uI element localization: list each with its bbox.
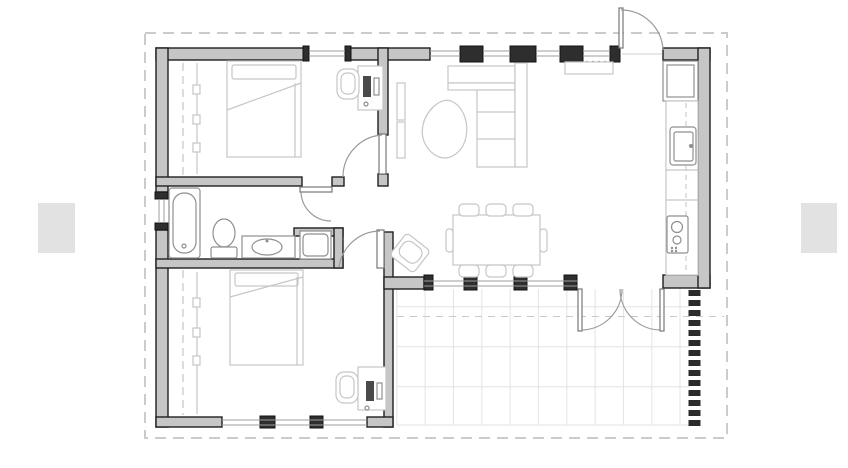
kitchen-sink — [670, 127, 696, 165]
vanity-sink — [242, 236, 295, 258]
living-south-window-band — [424, 281, 578, 286]
wardrobe-handle — [193, 298, 200, 307]
cap-bath-window-top — [155, 192, 168, 199]
bathroom — [169, 188, 331, 259]
bedroom-1 — [183, 61, 383, 175]
wardrobe-handle — [193, 85, 200, 94]
sofa-seats — [477, 90, 515, 167]
stove-knob — [675, 247, 677, 249]
patio — [397, 289, 724, 426]
wall-bottom-left — [156, 417, 222, 427]
toilet — [211, 219, 237, 258]
bedroom1-door-swing — [343, 135, 382, 177]
carousel-next-placeholder[interactable] — [801, 203, 837, 253]
bathroom-left-window — [159, 199, 164, 223]
kitchen — [663, 61, 698, 275]
desk-chair-2 — [336, 372, 358, 403]
desk-chair-1 — [337, 69, 359, 99]
sink-faucet — [266, 240, 269, 243]
sofa-chaise — [448, 66, 515, 83]
armchair-outline — [390, 233, 431, 274]
bedroom1-top-window — [309, 51, 345, 56]
bed-1 — [227, 61, 301, 157]
tv-unit-upper — [397, 83, 405, 120]
post-south-band-0 — [424, 275, 433, 290]
bedroom-2-door — [339, 230, 384, 268]
french-door-leaf-right — [660, 289, 664, 331]
bathroom-door-swing — [301, 192, 331, 221]
sofa-backrest — [515, 63, 527, 167]
dining-chair — [486, 204, 506, 216]
wall-bottom-right — [367, 417, 393, 427]
post-south-band-3 — [564, 275, 577, 290]
wall-right — [698, 48, 710, 288]
stove-knob — [671, 250, 673, 252]
screenshot-stage — [0, 0, 848, 468]
wardrobe-handle — [193, 143, 200, 152]
entry-bench — [565, 62, 613, 74]
tv-unit-lower — [397, 122, 405, 158]
toilet-tank — [211, 247, 237, 258]
toilet-bowl — [213, 219, 235, 247]
stove-knob — [671, 247, 673, 249]
entry-door-leaf — [619, 8, 623, 48]
french-door-leaf-left — [578, 289, 582, 331]
wall-bedroom1-east-stub — [378, 174, 388, 186]
dining-set — [446, 204, 547, 277]
wall-top-bedroom1 — [156, 48, 308, 60]
post-bedroom2-window-1 — [260, 416, 275, 428]
coffee-table — [422, 100, 466, 158]
floor-plan-canvas — [0, 0, 848, 468]
wall-left-upper — [156, 48, 168, 192]
bathtub — [169, 188, 200, 258]
dining-table — [453, 215, 540, 265]
wall-bedroom1-bathroom — [156, 177, 302, 186]
computer-monitor — [363, 76, 371, 97]
bed-2 — [230, 270, 303, 365]
post-bedroom2-window-2 — [310, 416, 323, 428]
bedroom-2 — [183, 270, 386, 415]
desk-2 — [358, 367, 386, 410]
wardrobe-handle — [193, 356, 200, 365]
living-dining — [390, 62, 613, 277]
patio-french-door — [578, 289, 664, 331]
cap-bedroom1-window-left — [303, 46, 309, 61]
dining-chair — [513, 204, 533, 216]
pier-top-3 — [560, 46, 583, 62]
french-door-swing-left — [582, 289, 622, 330]
pier-top-2 — [510, 46, 536, 62]
dining-chair-end — [540, 229, 547, 252]
sink-faucet — [689, 144, 693, 148]
armchair — [390, 233, 431, 274]
patio-tile-grid — [397, 289, 690, 425]
pier-top-1 — [460, 46, 483, 62]
bedroom2-door-leaf — [377, 230, 384, 268]
washing-machine — [300, 231, 331, 259]
bedroom2-bottom-window — [222, 420, 367, 425]
wall-bathroom-bedroom2 — [156, 259, 343, 268]
cap-bath-window-bottom — [155, 223, 168, 230]
dining-chair — [459, 265, 479, 277]
dining-chair — [486, 265, 506, 277]
bed-outline — [230, 270, 303, 365]
fridge — [663, 61, 698, 101]
carousel-prev-placeholder[interactable] — [38, 203, 75, 253]
stove-knob — [675, 250, 677, 252]
desk-1 — [358, 66, 383, 110]
sofa-edge — [448, 83, 515, 90]
entry-door — [619, 8, 663, 50]
dining-chair — [459, 204, 479, 216]
computer-monitor — [366, 381, 374, 401]
bedroom1-door-leaf — [379, 134, 386, 174]
stove — [667, 216, 688, 253]
wardrobe-handle — [193, 115, 200, 124]
dining-chair-end — [446, 229, 453, 252]
french-door-swing-right — [620, 289, 660, 330]
wall-hall-stub — [332, 177, 344, 186]
dining-chair — [513, 265, 533, 277]
bedroom2-door-swing — [339, 231, 380, 267]
cap-bedroom1-window-right — [345, 46, 351, 61]
entry-door-swing — [621, 10, 663, 50]
bathroom-door-leaf — [300, 187, 332, 192]
wardrobe-handle — [193, 328, 200, 337]
wall-living-south-solid — [384, 277, 424, 289]
fridge-outline — [663, 61, 698, 101]
wall-washer-nook-right — [334, 228, 343, 268]
bathroom-door — [300, 187, 332, 221]
bedroom-1-door — [343, 134, 386, 177]
bed-outline — [227, 61, 301, 157]
